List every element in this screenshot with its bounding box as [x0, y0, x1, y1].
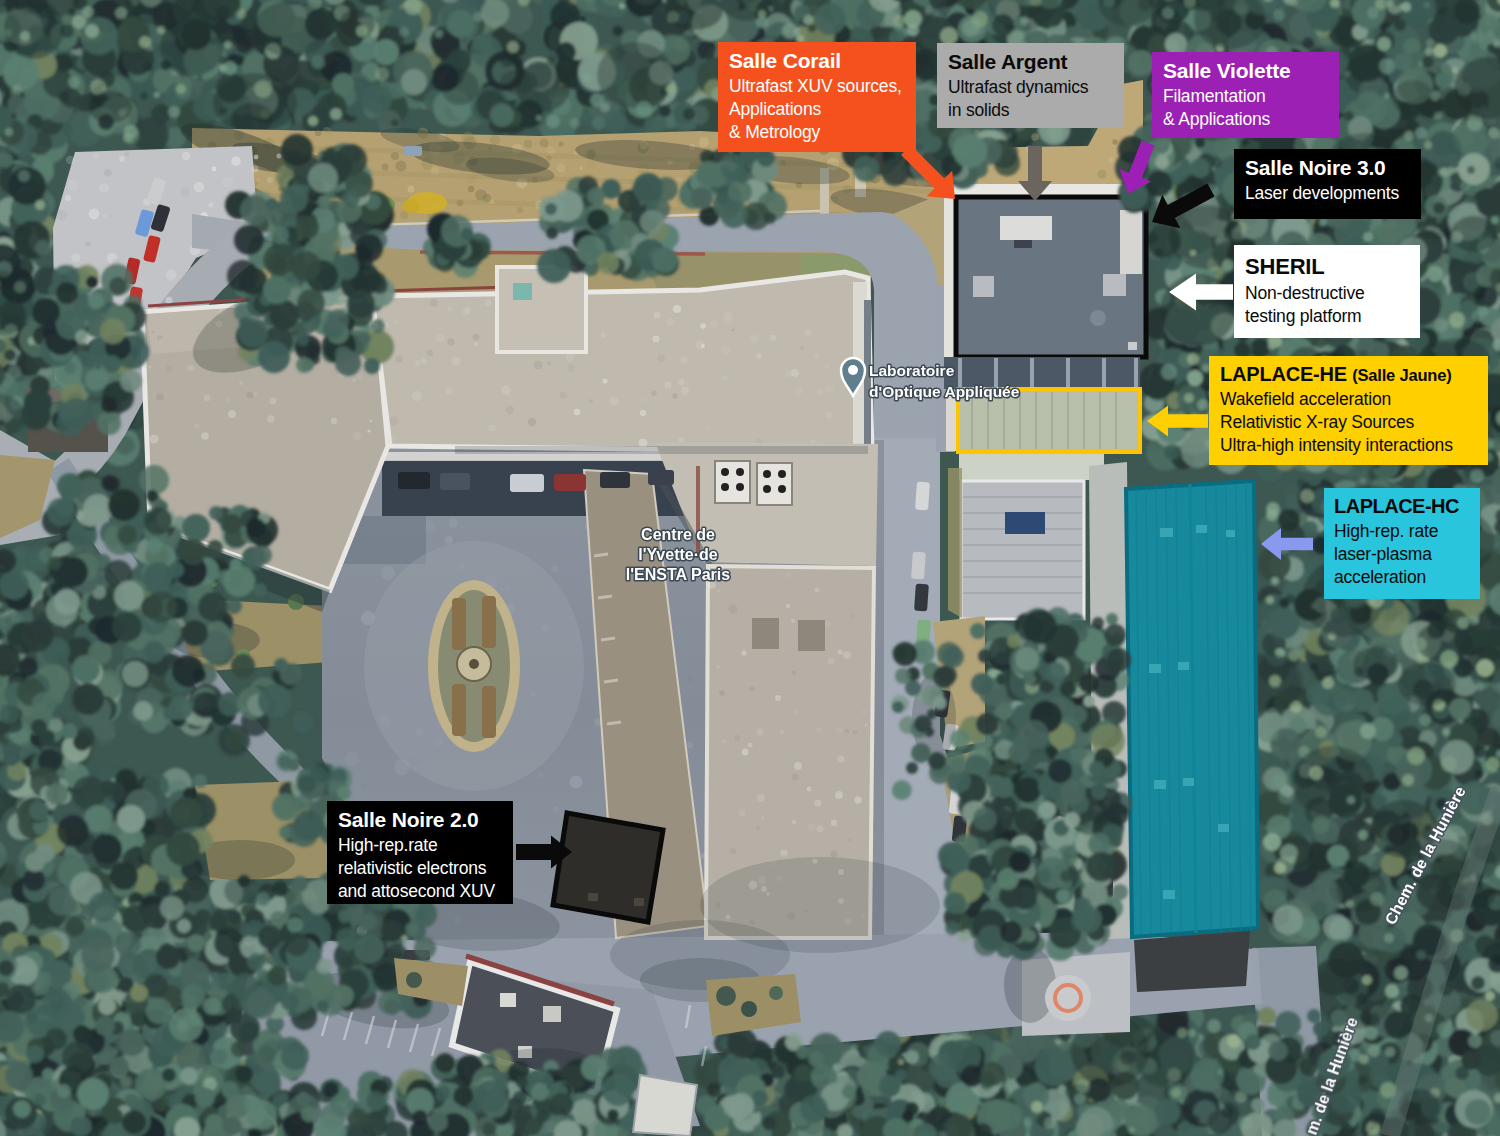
svg-text:Laboratoire: Laboratoire — [869, 362, 955, 379]
svg-text:l'Yvette·de: l'Yvette·de — [638, 546, 717, 563]
svg-text:l'ENSTA Paris: l'ENSTA Paris — [626, 566, 730, 583]
svg-text:d'Optique Appliquée: d'Optique Appliquée — [869, 383, 1020, 400]
svg-text:Centre de: Centre de — [641, 526, 715, 543]
